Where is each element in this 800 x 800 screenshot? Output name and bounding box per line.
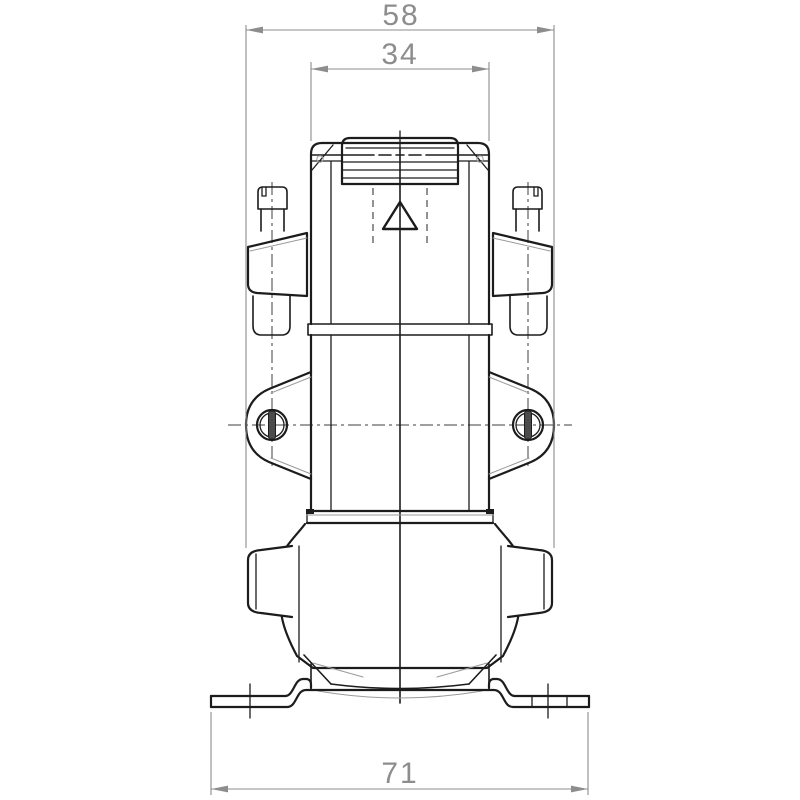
pump-front-view-drawing: 58 34 71 — [0, 0, 800, 800]
motor-tab-right — [508, 546, 552, 617]
right-screw-slot — [525, 411, 532, 439]
technical-drawing-canvas: 58 34 71 — [0, 0, 800, 800]
motor-tab-left — [248, 546, 292, 617]
dim34-arrow-left — [311, 66, 328, 73]
dim34-extension-lines — [311, 62, 489, 141]
inlet-port-left — [248, 187, 307, 335]
right-foot-slot-edges — [532, 696, 567, 707]
left-port-body — [248, 233, 307, 296]
left-port-cap-notch — [262, 187, 266, 196]
right-port-body — [493, 233, 552, 296]
dim34-label: 34 — [381, 38, 418, 71]
clamp-lug-right — [486, 509, 494, 514]
left-screw-slot — [269, 411, 276, 439]
dim58-label: 58 — [382, 0, 419, 32]
bracket-top-left — [211, 679, 311, 696]
outlet-port-right — [493, 187, 552, 335]
dim58-arrow-right — [537, 27, 554, 34]
dimension-34: 34 — [311, 38, 489, 141]
dim71-label: 71 — [381, 757, 418, 790]
dim71-arrow-left — [211, 786, 228, 793]
right-port-cap-notch — [534, 187, 538, 196]
clamp-lug-left — [306, 509, 314, 514]
dimension-71: 71 — [211, 712, 588, 795]
dim34-arrow-right — [472, 66, 489, 73]
dim71-arrow-right — [571, 786, 588, 793]
dim58-arrow-left — [246, 27, 263, 34]
bracket-top-right — [489, 679, 589, 696]
